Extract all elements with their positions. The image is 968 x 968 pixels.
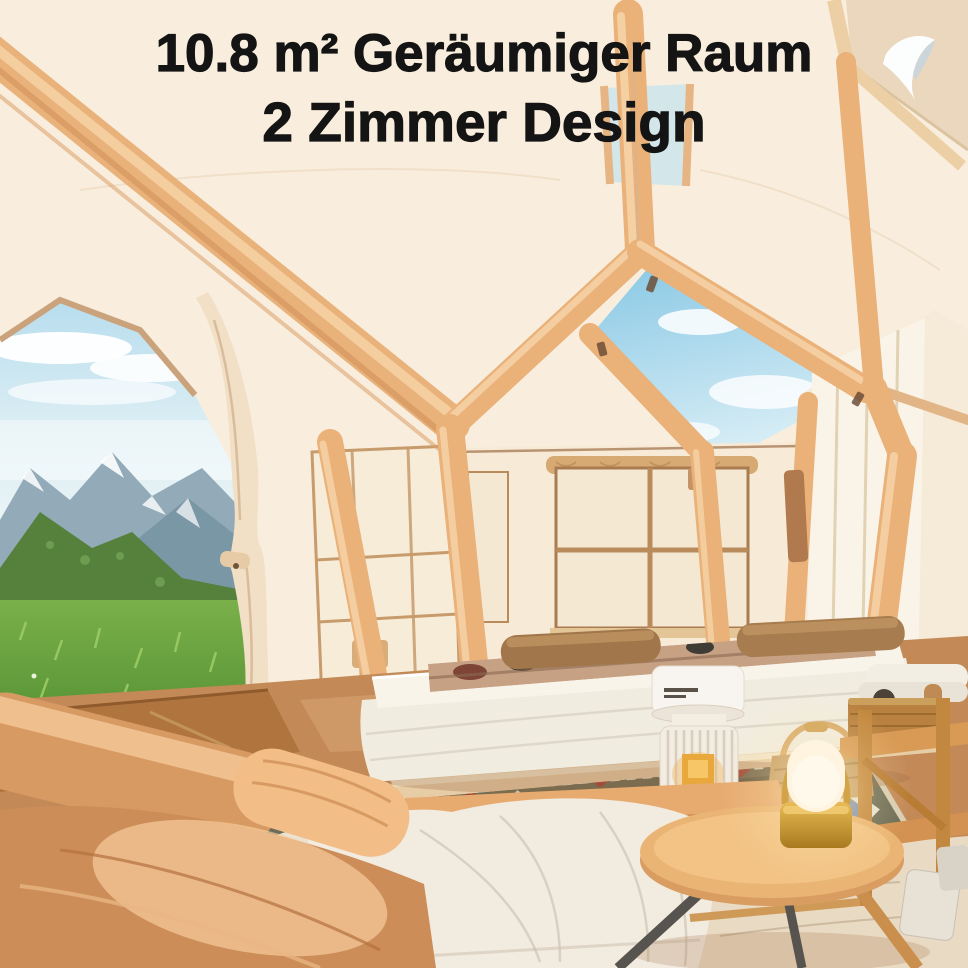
headline-line-1: 10.8 m² Geräumiger Raum	[0, 18, 968, 90]
headline: 10.8 m² Geräumiger Raum 2 Zimmer Design	[0, 18, 968, 154]
product-image: 10.8 m² Geräumiger Raum 2 Zimmer Design	[0, 0, 968, 968]
portable-dome-lamp	[721, 695, 911, 885]
headline-line-2: 2 Zimmer Design	[0, 90, 968, 154]
